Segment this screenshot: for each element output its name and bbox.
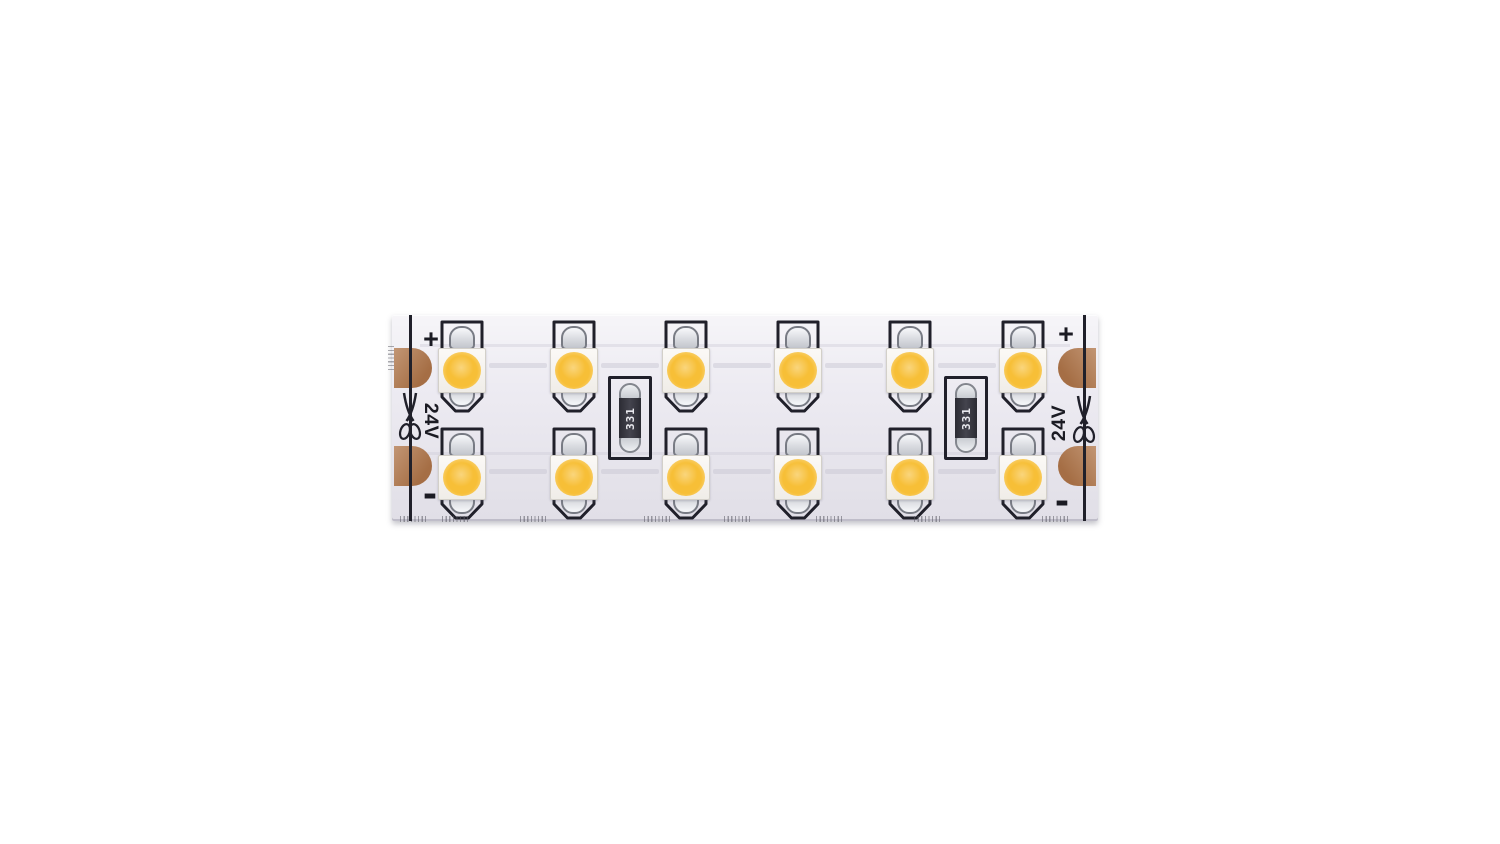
led-col6-row1 [999, 320, 1047, 413]
led-package [438, 348, 486, 393]
led-solder-contact-top [561, 433, 587, 457]
led-col5-row1 [886, 320, 934, 413]
led-package [774, 348, 822, 393]
led-package [438, 455, 486, 500]
led-col1-row1 [438, 320, 486, 413]
voltage-label-left: 24V [420, 389, 442, 453]
led-solder-contact-top [897, 433, 923, 457]
led-package [662, 455, 710, 500]
resistor-2: 331 [944, 376, 988, 460]
led-package [886, 348, 934, 393]
led-package [999, 348, 1047, 393]
led-package [550, 455, 598, 500]
led-solder-contact-top [673, 433, 699, 457]
pcb-trace [601, 469, 659, 474]
led-solder-contact-top [1010, 433, 1036, 457]
led-emitter [667, 459, 705, 496]
led-emitter [779, 459, 817, 496]
led-solder-contact-top [561, 326, 587, 350]
led-solder-contact-top [897, 326, 923, 350]
edge-tick-marks [724, 516, 750, 522]
led-package [662, 348, 710, 393]
polarity-plus-label-right: + [1055, 323, 1077, 345]
led-package [774, 455, 822, 500]
led-col2-row1 [550, 320, 598, 413]
led-solder-contact-top [449, 326, 475, 350]
product-photo-canvas: + - 24V + - 24V [0, 0, 1500, 844]
pcb-trace [420, 344, 1070, 347]
polarity-minus-label-left: - [419, 482, 441, 504]
led-package [886, 455, 934, 500]
scissors-icon [397, 392, 423, 444]
pcb-trace [489, 363, 547, 368]
led-emitter [555, 352, 593, 389]
pcb-trace [825, 469, 883, 474]
pcb-trace [938, 469, 996, 474]
edge-tick-marks [816, 516, 842, 522]
polarity-plus-label-left: + [420, 328, 442, 350]
solder-pad-right-top [1058, 348, 1096, 388]
led-emitter [443, 352, 481, 389]
led-emitter [667, 352, 705, 389]
edge-tick-marks [442, 516, 468, 522]
led-strip: + - 24V + - 24V [392, 315, 1098, 521]
led-emitter [779, 352, 817, 389]
led-emitter [1004, 352, 1042, 389]
led-emitter [891, 352, 929, 389]
scissors-icon [1071, 395, 1097, 447]
led-solder-contact-top [673, 326, 699, 350]
pcb-trace [601, 363, 659, 368]
edge-tick-marks [914, 516, 940, 522]
pcb-trace [938, 363, 996, 368]
led-col5-row2 [886, 427, 934, 520]
led-solder-contact-top [785, 326, 811, 350]
resistor-code-label: 331 [624, 407, 637, 430]
pcb-trace [825, 363, 883, 368]
edge-tick-marks [644, 516, 670, 522]
led-solder-contact-top [1010, 326, 1036, 350]
resistor-body: 331 [955, 398, 977, 438]
led-emitter [1004, 459, 1042, 496]
pcb-trace [713, 469, 771, 474]
scissors-icon [397, 392, 423, 444]
voltage-label-right: 24V [1048, 391, 1070, 455]
edge-tick-marks [520, 516, 546, 522]
led-emitter [443, 459, 481, 496]
led-emitter [891, 459, 929, 496]
led-package [999, 455, 1047, 500]
led-package [550, 348, 598, 393]
led-emitter [555, 459, 593, 496]
led-solder-contact-top [785, 433, 811, 457]
led-solder-contact-top [449, 433, 475, 457]
led-col4-row2 [774, 427, 822, 520]
resistor-1: 331 [608, 376, 652, 460]
led-col1-row2 [438, 427, 486, 520]
scissors-icon [1071, 395, 1097, 447]
resistor-code-label: 331 [960, 407, 973, 430]
led-col4-row1 [774, 320, 822, 413]
pcb-trace [489, 469, 547, 474]
led-col6-row2 [999, 427, 1047, 520]
polarity-minus-label-right: - [1051, 489, 1073, 511]
resistor-body: 331 [619, 398, 641, 438]
led-col3-row1 [662, 320, 710, 413]
led-col3-row2 [662, 427, 710, 520]
pcb-trace [713, 363, 771, 368]
led-col2-row2 [550, 427, 598, 520]
